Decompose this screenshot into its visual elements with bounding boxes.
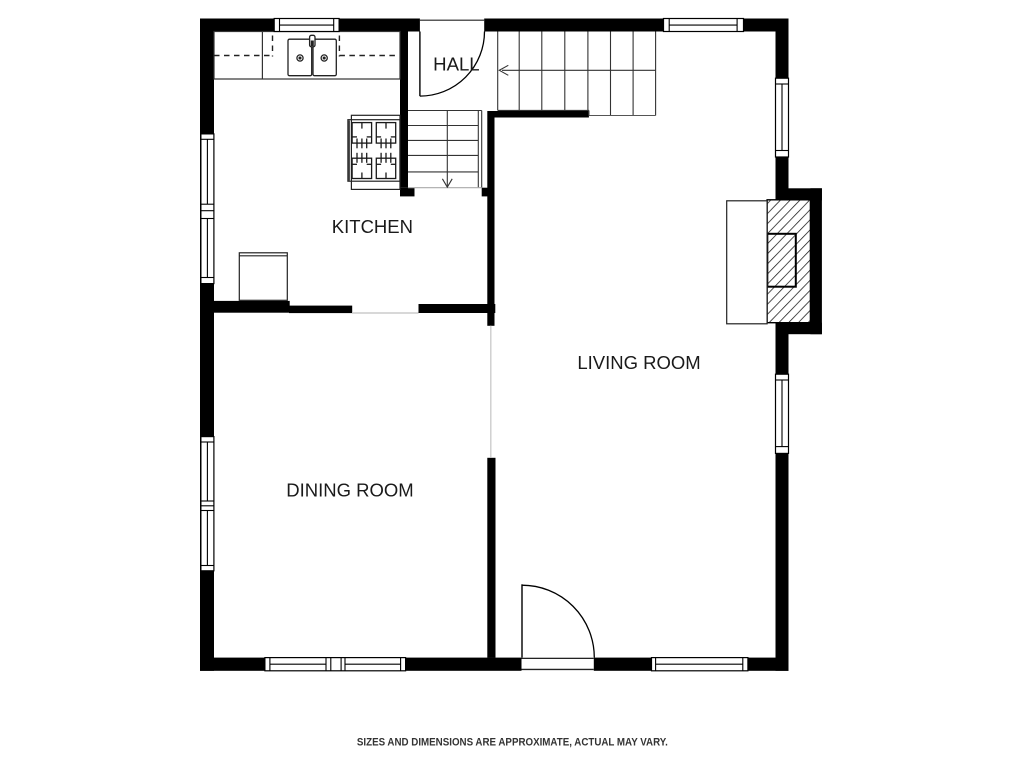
svg-text:SIZES AND DIMENSIONS ARE APPRO: SIZES AND DIMENSIONS ARE APPROXIMATE, AC… <box>357 737 668 749</box>
svg-text:KITCHEN: KITCHEN <box>332 216 413 237</box>
svg-text:DINING ROOM: DINING ROOM <box>286 480 413 501</box>
svg-text:HALL: HALL <box>433 54 480 75</box>
svg-text:LIVING ROOM: LIVING ROOM <box>577 352 700 373</box>
